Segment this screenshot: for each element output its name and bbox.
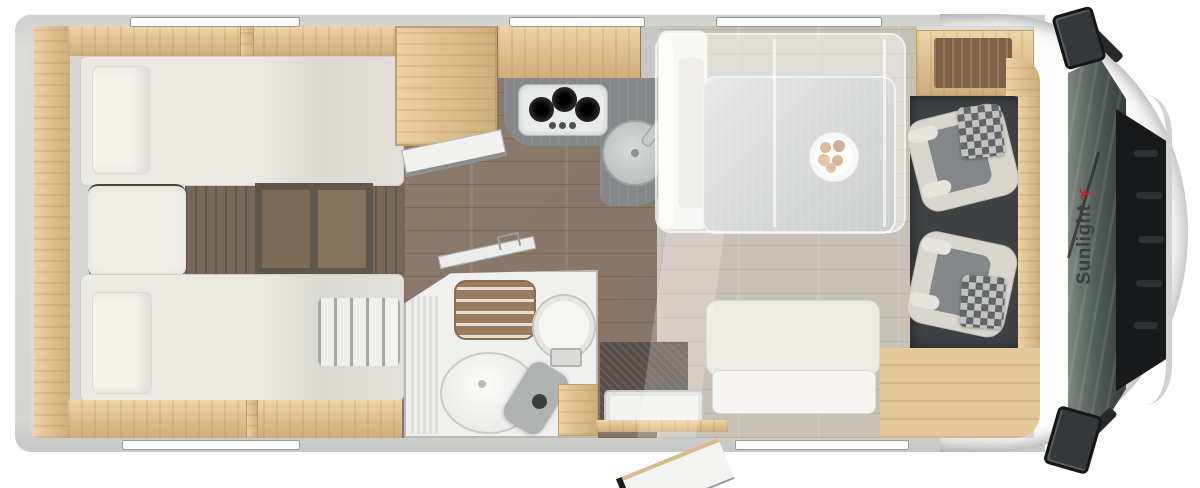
basin-drain bbox=[478, 380, 486, 388]
bed-seam bbox=[883, 39, 886, 227]
mirror-glass bbox=[1051, 5, 1107, 70]
bed-edge-highlight bbox=[659, 37, 673, 229]
bed-seam bbox=[773, 39, 776, 227]
hob-knob bbox=[559, 122, 566, 129]
mirror-top bbox=[1058, 6, 1122, 80]
seat-headrest-cushion bbox=[959, 275, 1007, 330]
roof-window bbox=[735, 440, 909, 450]
sink-drain bbox=[631, 149, 639, 157]
rear-shelf bbox=[34, 26, 70, 438]
brand-logo: Sunlight bbox=[1072, 170, 1098, 300]
overhead-lockers-rear-top bbox=[68, 26, 402, 56]
locker-divider bbox=[246, 400, 258, 438]
chrome-trim bbox=[1146, 95, 1172, 405]
bed-top-pillow bbox=[92, 66, 150, 174]
bathroom-cabinet bbox=[558, 384, 598, 436]
dinette-bench-rear bbox=[706, 300, 880, 376]
roof-window bbox=[130, 17, 300, 27]
mirror-glass bbox=[1043, 405, 1104, 475]
burner bbox=[552, 87, 577, 112]
cab-wood-floor bbox=[880, 348, 1040, 438]
bed-step-tread bbox=[262, 190, 310, 268]
seat-headrest-cushion bbox=[956, 103, 1005, 159]
swivel-panel-knob bbox=[532, 394, 547, 409]
bathroom bbox=[404, 270, 598, 438]
burner bbox=[529, 97, 554, 122]
sideboard-tambour-panel bbox=[934, 38, 1012, 88]
hob-knob bbox=[549, 122, 556, 129]
roof-window bbox=[122, 440, 300, 450]
bed-step-tread bbox=[318, 190, 366, 268]
mirror-bottom bbox=[1046, 392, 1114, 468]
clothes-rack bbox=[318, 298, 400, 366]
hob-knob bbox=[569, 122, 576, 129]
kitchen-overhead-lockers bbox=[498, 26, 640, 78]
sun-icon bbox=[1077, 186, 1093, 202]
overhead-lockers-rear-bottom bbox=[68, 400, 402, 438]
shower-wall bbox=[408, 296, 440, 434]
bed-bottom-pillow bbox=[92, 292, 152, 394]
wardrobe bbox=[395, 26, 497, 146]
shower-mat bbox=[454, 280, 536, 340]
middle-cushion bbox=[88, 184, 186, 278]
cab-alcove-wood-trim bbox=[1018, 96, 1040, 350]
toilet-hinge bbox=[550, 348, 582, 367]
roof-window bbox=[716, 17, 882, 27]
roof-window bbox=[509, 17, 645, 27]
dinette-bench-rear-cushion bbox=[712, 370, 876, 414]
drop-down-bed-overlay bbox=[655, 33, 906, 233]
gas-hob bbox=[518, 84, 608, 136]
locker-divider bbox=[240, 26, 254, 56]
burner bbox=[575, 97, 600, 122]
motorhome-floorplan: Sunlight bbox=[0, 0, 1200, 488]
brand-text: Sunlight bbox=[1074, 205, 1096, 285]
